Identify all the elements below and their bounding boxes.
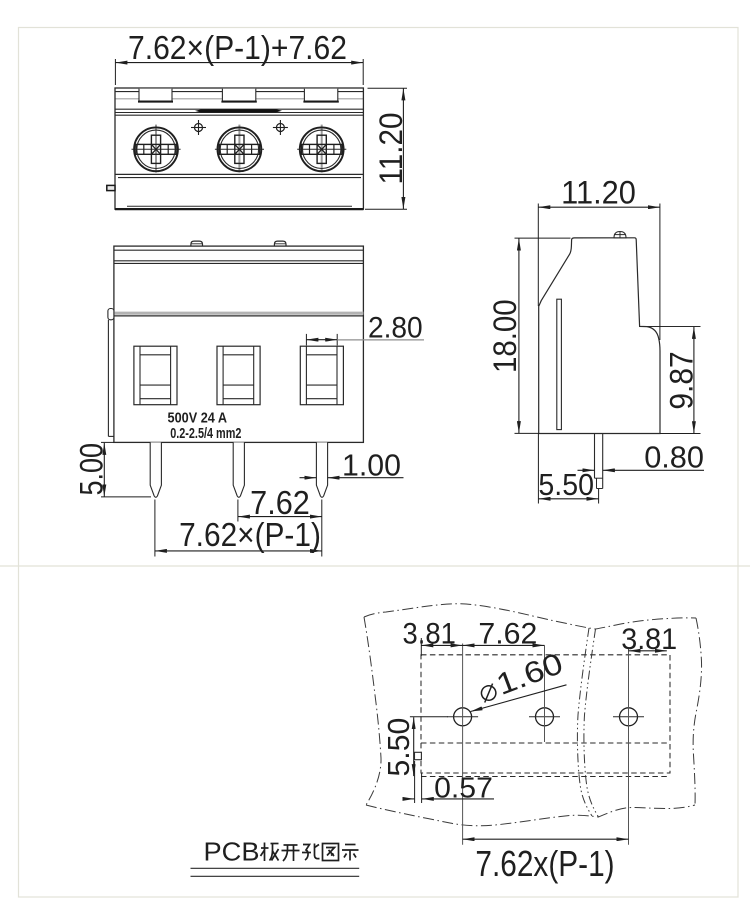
svg-text:5.50: 5.50 xyxy=(538,467,594,502)
svg-text:0.2-2.5/4 mm2: 0.2-2.5/4 mm2 xyxy=(170,426,241,442)
svg-text:11.20: 11.20 xyxy=(561,174,636,210)
svg-text:500V 24 A: 500V 24 A xyxy=(168,410,228,426)
svg-text:9.87: 9.87 xyxy=(664,351,700,409)
svg-text:3.81: 3.81 xyxy=(403,618,456,651)
svg-text:11.20: 11.20 xyxy=(373,113,409,185)
svg-text:7.62x(P-1): 7.62x(P-1) xyxy=(475,843,614,884)
svg-text:0.57: 0.57 xyxy=(434,773,493,805)
svg-text:5.50: 5.50 xyxy=(381,718,416,777)
svg-text:1.00: 1.00 xyxy=(342,447,401,482)
svg-text:5.00: 5.00 xyxy=(74,443,110,496)
svg-text:2.80: 2.80 xyxy=(368,312,423,345)
svg-text:7.62×(P-1)+7.62: 7.62×(P-1)+7.62 xyxy=(128,29,347,66)
svg-text:7.62: 7.62 xyxy=(478,618,537,651)
svg-text:PCB: PCB xyxy=(204,836,260,866)
svg-text:0.80: 0.80 xyxy=(644,440,704,475)
svg-text:7.62×(P-1): 7.62×(P-1) xyxy=(179,516,321,553)
svg-text:18.00: 18.00 xyxy=(487,299,523,373)
svg-text:3.81: 3.81 xyxy=(621,623,677,656)
